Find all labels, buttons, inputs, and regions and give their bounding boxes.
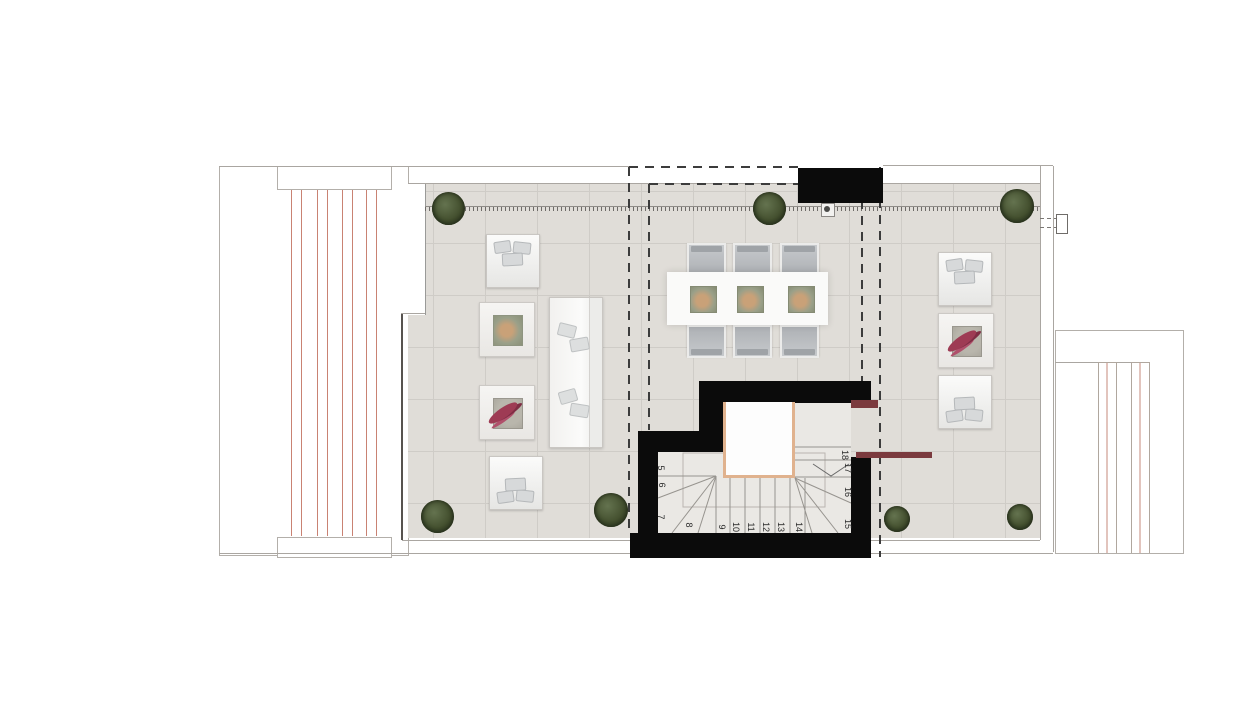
tree-icon — [432, 192, 465, 225]
stair-step-number: 10 — [729, 519, 743, 535]
roof-edge-dashed-line — [648, 184, 650, 430]
tree-icon — [1007, 504, 1033, 530]
planter-icon — [690, 286, 717, 313]
drain-icon — [821, 203, 835, 217]
terrace-railing — [425, 206, 1040, 211]
sofa-backrest — [589, 298, 602, 447]
dining-table — [667, 272, 828, 325]
sofa — [549, 297, 603, 448]
stair-step-number: 7 — [654, 509, 668, 525]
tree-icon — [1000, 189, 1034, 223]
louvre-slat-icon — [291, 190, 302, 536]
chimney-block — [798, 168, 883, 203]
top-boundary-line — [883, 165, 1053, 166]
louvre-slat-icon — [342, 190, 353, 536]
stair-step-number: 6 — [655, 477, 669, 493]
dining-chair — [687, 325, 726, 358]
right-wall-outer-line — [1053, 166, 1054, 552]
left-wall-line — [401, 313, 403, 540]
planter-icon — [788, 286, 815, 313]
stair-landing — [723, 402, 795, 478]
coffee-table — [479, 385, 535, 440]
stair-wall — [699, 381, 871, 403]
tree-icon — [884, 506, 910, 532]
left-pergola-bottom-band — [277, 537, 392, 558]
top-boundary-line — [219, 166, 629, 167]
scupper-icon — [1056, 214, 1068, 234]
right-pergola-outline — [1055, 330, 1184, 554]
armchair — [489, 456, 543, 510]
handrail-bar — [856, 452, 932, 458]
left-wall-notch — [408, 183, 426, 315]
handrail-bar — [851, 400, 878, 408]
planter-icon — [493, 315, 523, 346]
coffee-table — [938, 313, 994, 368]
right-wall-line — [1040, 166, 1041, 540]
dining-chair — [733, 325, 772, 358]
armchair — [486, 234, 540, 288]
armchair — [938, 252, 992, 306]
stair-step-number: 13 — [774, 519, 788, 535]
left-wall-step-line — [401, 313, 425, 314]
armchair — [938, 375, 992, 429]
louvre-slat-icon — [317, 190, 328, 536]
roof-edge-dashed-line — [861, 184, 863, 382]
stair-step-number: 9 — [715, 519, 729, 535]
left-pergola-top-band — [277, 166, 392, 190]
tree-icon — [421, 500, 454, 533]
top-inner-line — [883, 183, 1040, 184]
louvre-slat-icon — [366, 190, 377, 536]
planter-icon — [737, 286, 764, 313]
coffee-table — [479, 302, 535, 357]
stair-step-number: 15 — [841, 516, 855, 532]
left-pergola-outline — [219, 166, 409, 556]
floor-plan-canvas: 56789101112131415161718 — [0, 0, 1240, 720]
stair-step-number: 5 — [654, 460, 668, 476]
stair-step-number: 14 — [792, 519, 806, 535]
louvre-slat-icon — [1098, 362, 1117, 553]
stair-step-number: 18 — [838, 447, 852, 463]
louvre-slat-icon — [1131, 362, 1150, 553]
stair-wall — [630, 533, 871, 558]
tree-icon — [753, 192, 786, 225]
stair-step-number: 11 — [744, 519, 758, 535]
stair-step-number: 8 — [682, 517, 696, 533]
stair-step-number: 16 — [841, 484, 855, 500]
roof-edge-dashed-line — [629, 166, 798, 168]
stair-step-number: 12 — [759, 519, 773, 535]
tree-icon — [594, 493, 628, 527]
dining-chair — [780, 325, 819, 358]
roof-edge-dashed-line — [649, 183, 798, 185]
